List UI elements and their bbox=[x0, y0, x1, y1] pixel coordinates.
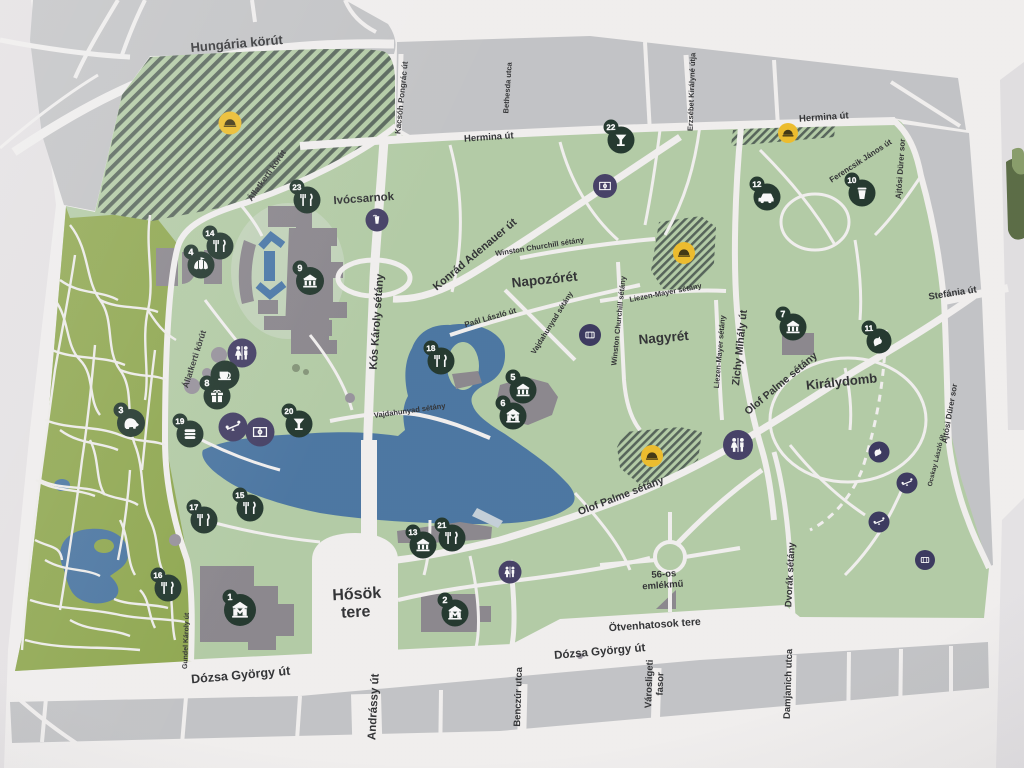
svg-text:13: 13 bbox=[408, 528, 418, 537]
svg-text:3: 3 bbox=[118, 405, 123, 415]
svg-text:17: 17 bbox=[189, 503, 199, 512]
svg-text:1: 1 bbox=[227, 592, 232, 602]
svg-text:16: 16 bbox=[153, 571, 163, 580]
svg-text:Városligeti: Városligeti bbox=[643, 659, 656, 708]
svg-text:5: 5 bbox=[510, 372, 515, 382]
svg-text:6: 6 bbox=[500, 398, 505, 408]
svg-text:fasor: fasor bbox=[655, 672, 667, 696]
svg-text:tere: tere bbox=[341, 603, 371, 622]
svg-text:4: 4 bbox=[188, 247, 193, 257]
svg-text:19: 19 bbox=[175, 417, 185, 426]
svg-text:7: 7 bbox=[780, 309, 785, 319]
svg-text:12: 12 bbox=[752, 180, 762, 189]
svg-text:18: 18 bbox=[426, 344, 436, 353]
svg-text:15: 15 bbox=[235, 491, 245, 500]
svg-text:11: 11 bbox=[865, 324, 874, 333]
svg-text:23: 23 bbox=[292, 183, 302, 192]
svg-text:14: 14 bbox=[205, 229, 215, 238]
svg-text:22: 22 bbox=[606, 123, 616, 132]
svg-text:21: 21 bbox=[437, 521, 447, 530]
svg-text:20: 20 bbox=[284, 407, 294, 416]
svg-text:2: 2 bbox=[442, 595, 447, 605]
svg-text:10: 10 bbox=[847, 176, 857, 185]
svg-text:Hősök: Hősök bbox=[332, 585, 382, 605]
svg-text:9: 9 bbox=[297, 263, 302, 273]
svg-text:8: 8 bbox=[204, 378, 209, 388]
svg-text:Benczúr utca: Benczúr utca bbox=[512, 666, 525, 727]
